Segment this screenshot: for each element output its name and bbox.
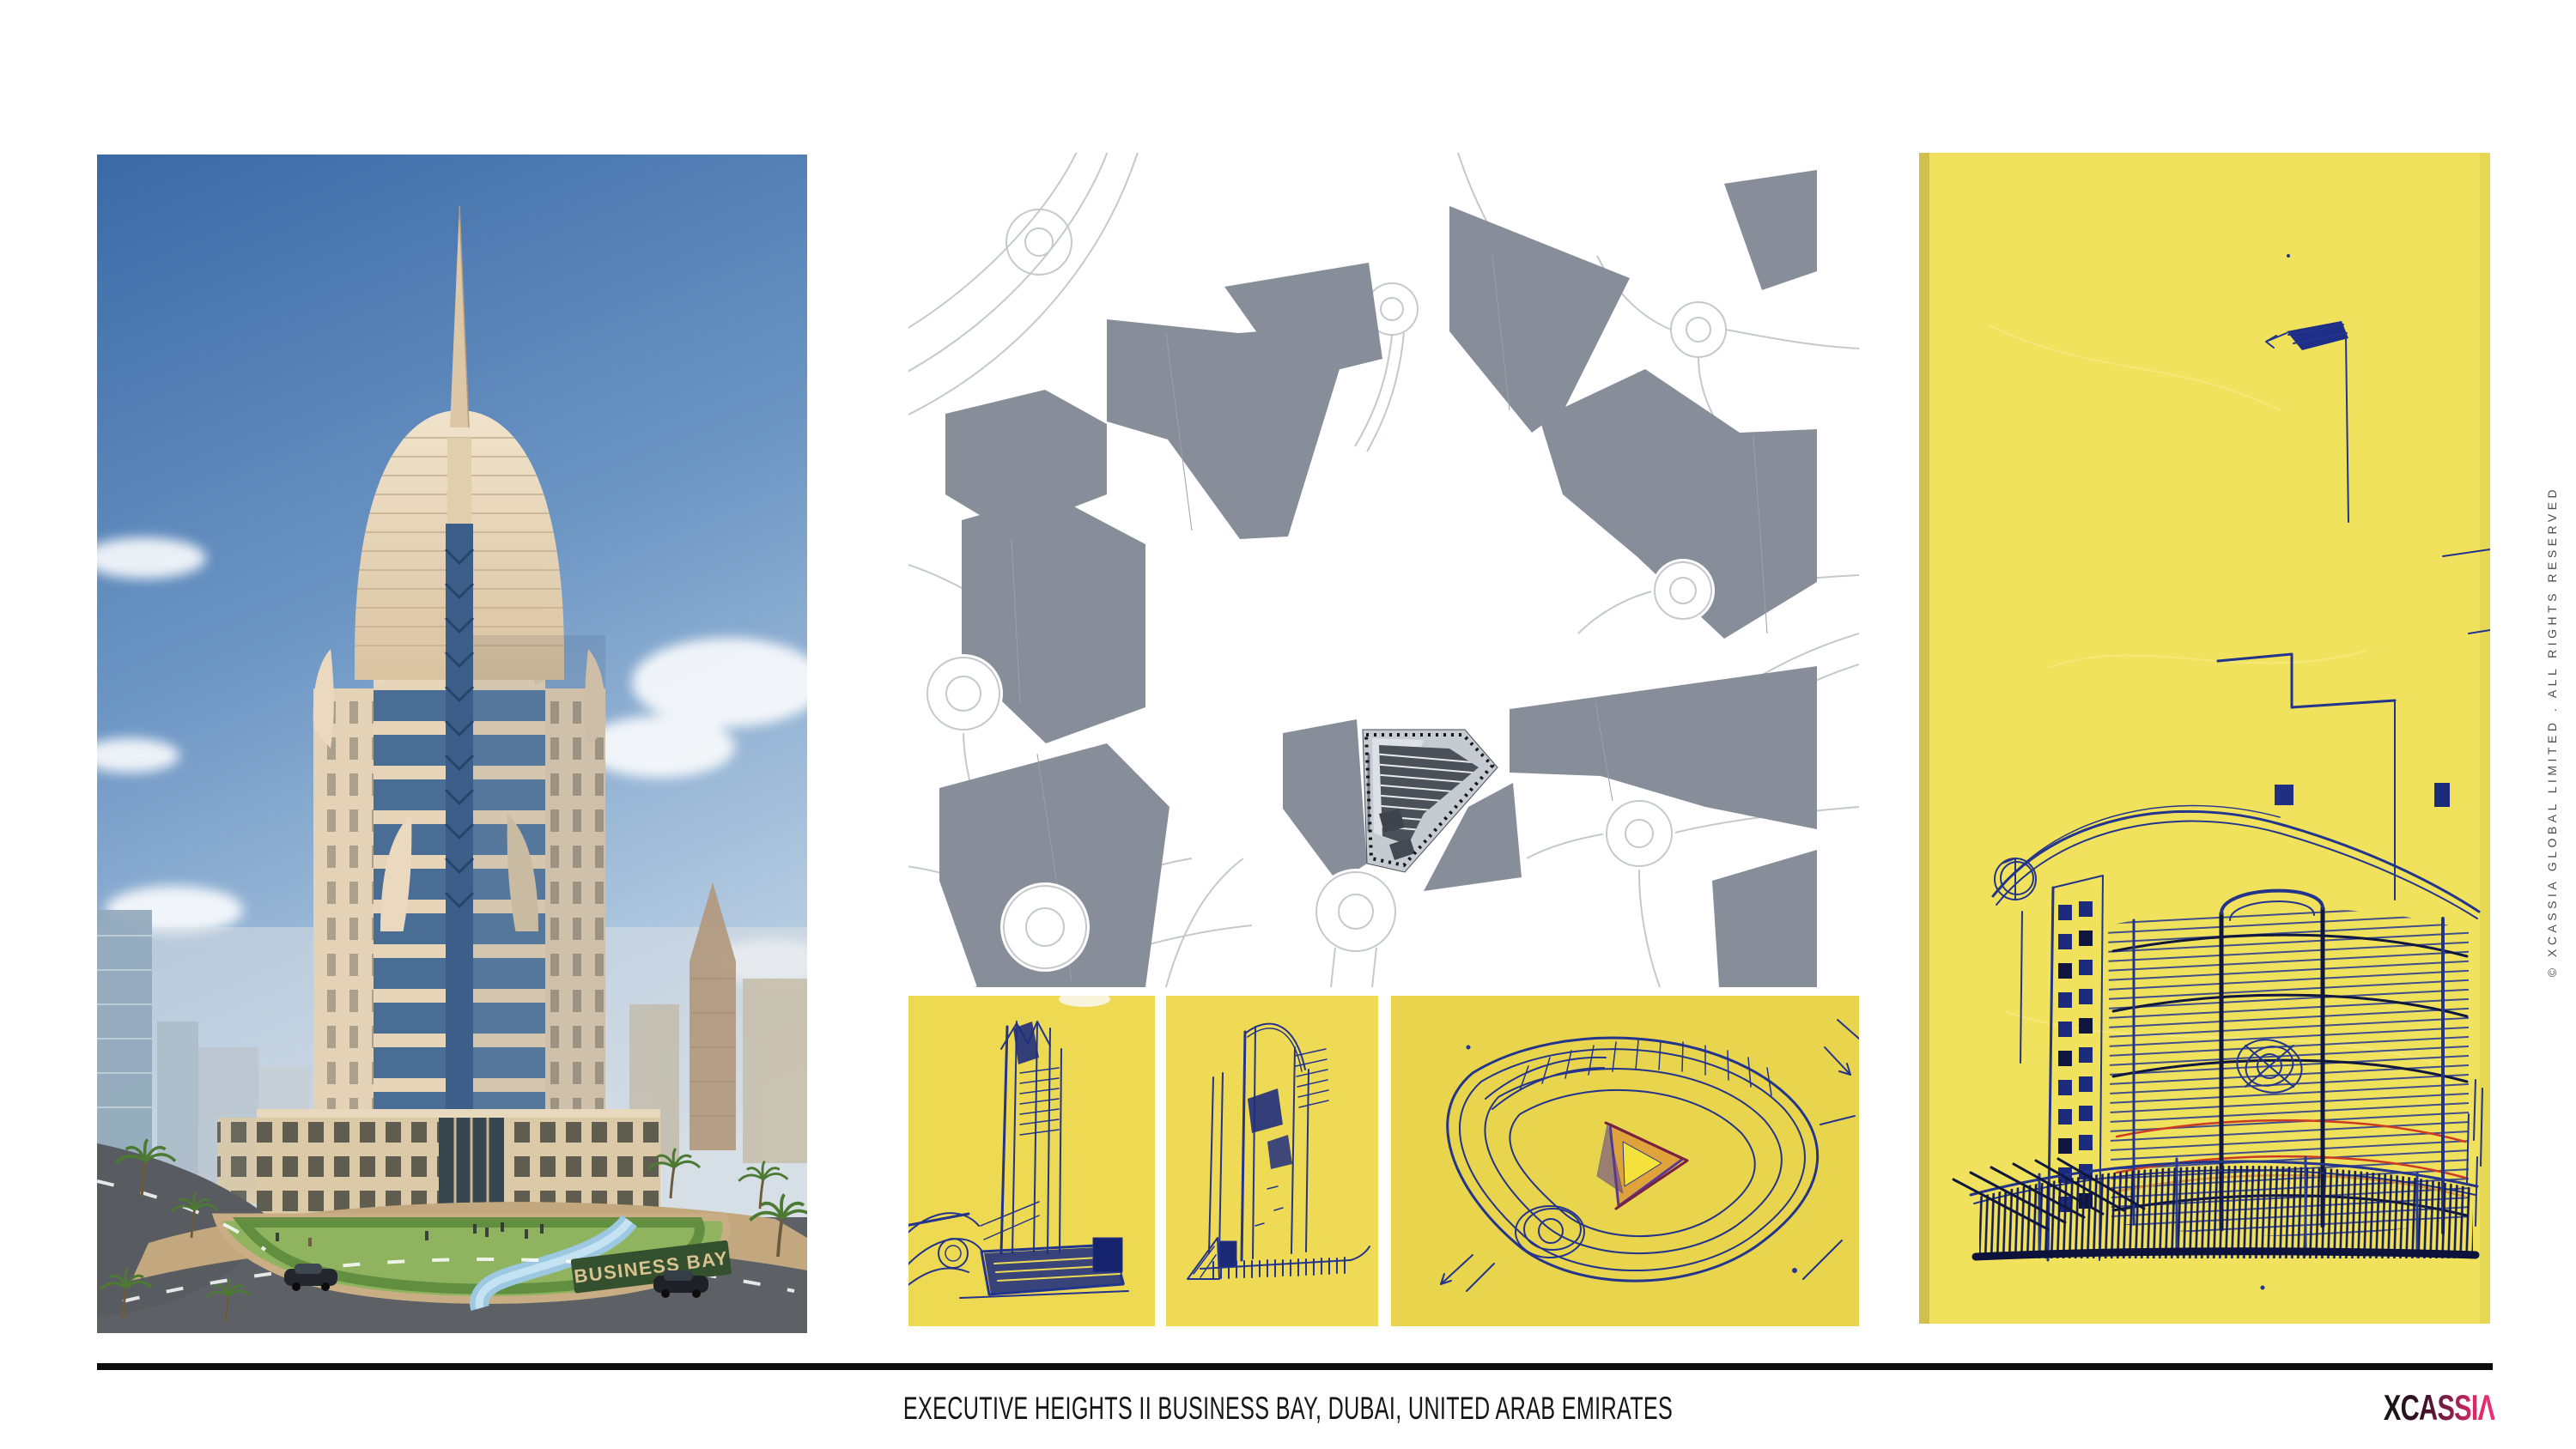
sketch-thumbnail-tower-base: [908, 996, 1155, 1326]
footer-divider-rule: [97, 1363, 2493, 1370]
copyright-vertical-text: © XCASSIA GLOBAL LIMITED . ALL RIGHTS RE…: [2545, 486, 2559, 977]
tower-rendering-photo: BUSINESS BAY: [97, 155, 807, 1333]
presentation-slide: BUSINESS BAY: [0, 0, 2576, 1449]
slide-caption: EXECUTIVE HEIGHTS II BUSINESS BAY, DUBAI…: [0, 1391, 2576, 1427]
sketch-thumbnail-tower-spire: [1166, 996, 1378, 1326]
slide-caption-text: EXECUTIVE HEIGHTS II BUSINESS BAY, DUBAI…: [903, 1391, 1673, 1427]
site-plan-map: [908, 153, 1859, 987]
tower-spine: [446, 438, 473, 1116]
sketch-thumbnail-plan: [1391, 996, 1859, 1326]
xcassia-logo: XCASSIΛ: [2342, 1387, 2494, 1428]
xcassia-logo-text: XCASSIΛ: [2384, 1387, 2494, 1428]
podium: [217, 1109, 660, 1219]
concept-sketch-large: [1919, 153, 2490, 1324]
